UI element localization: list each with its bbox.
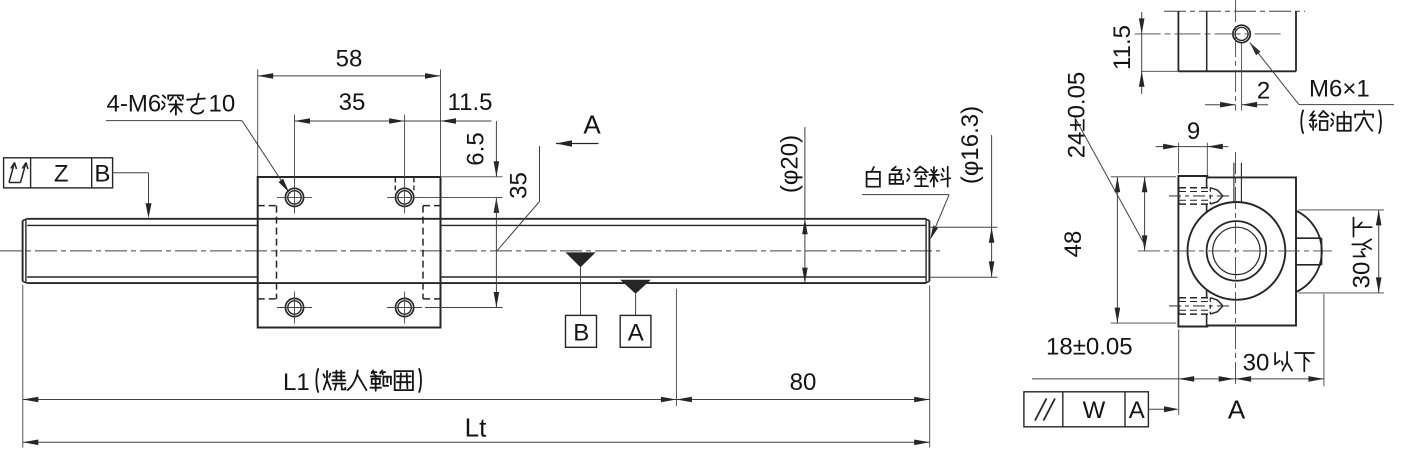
svg-text:4-M6: 4-M6 [107,91,162,118]
svg-text:48: 48 [1060,231,1087,258]
svg-text:B: B [94,161,110,188]
svg-text:2: 2 [1257,78,1270,105]
svg-text:35: 35 [339,89,366,116]
svg-text:6.5: 6.5 [463,132,490,165]
svg-text:Z: Z [54,161,69,188]
svg-text:A: A [628,319,644,346]
svg-text:W: W [1083,397,1106,424]
svg-text:10: 10 [209,91,236,118]
svg-text:(φ16.3): (φ16.3) [957,106,984,184]
svg-text:24±0.05: 24±0.05 [1064,72,1091,159]
svg-text:35: 35 [506,172,533,199]
svg-text:80: 80 [790,369,817,396]
svg-text:L1: L1 [283,369,310,396]
svg-text:B: B [573,319,589,346]
svg-text:(φ20): (φ20) [777,135,804,193]
svg-text:18±0.05: 18±0.05 [1046,334,1133,361]
svg-text:30: 30 [1348,262,1375,289]
svg-text:30: 30 [1243,350,1270,377]
svg-text:58: 58 [336,46,363,73]
svg-text:9: 9 [1187,118,1200,145]
svg-text:A: A [583,110,601,140]
svg-text:11.5: 11.5 [1109,25,1136,70]
svg-text:A: A [1228,395,1246,425]
svg-text:11.5: 11.5 [448,89,493,116]
svg-text:A: A [1129,397,1145,424]
svg-text:Lt: Lt [465,413,487,443]
svg-text:M6×1: M6×1 [1309,76,1370,103]
